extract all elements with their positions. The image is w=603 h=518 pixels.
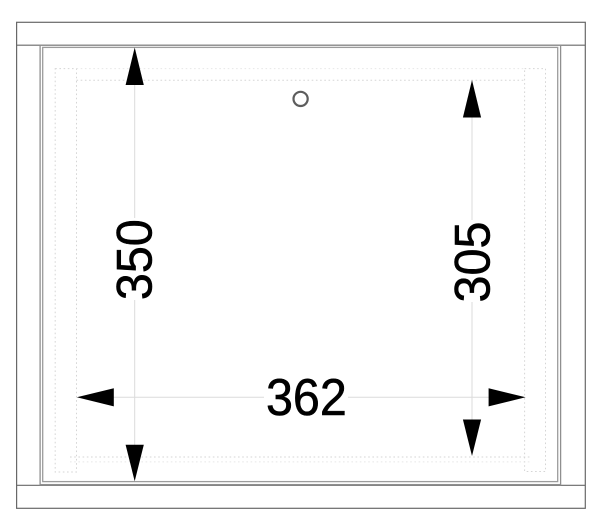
svg-text:362: 362: [266, 369, 347, 427]
svg-text:350: 350: [107, 219, 163, 300]
svg-text:305: 305: [445, 222, 501, 303]
